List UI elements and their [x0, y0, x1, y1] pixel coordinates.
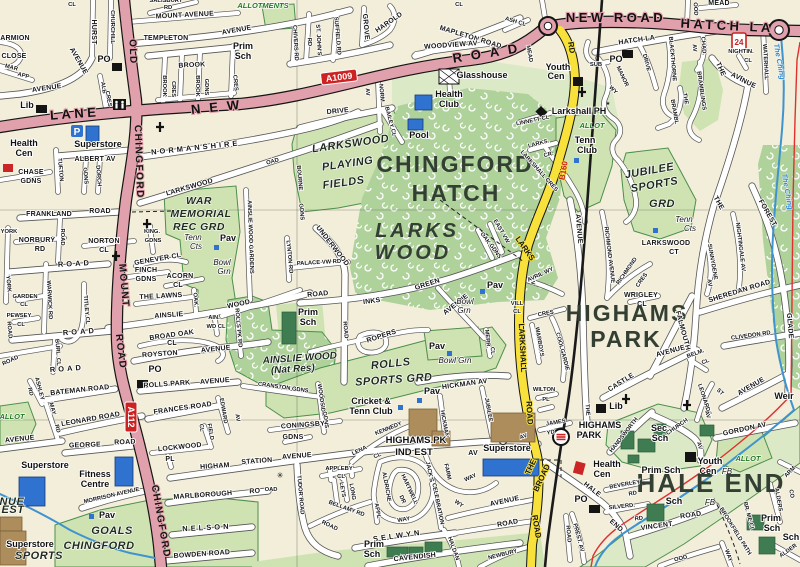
- map-label: MARMION: [0, 35, 30, 42]
- map-label: NORTON: [88, 238, 119, 245]
- map-label: CL: [173, 282, 183, 289]
- map-label: CL: [337, 474, 345, 480]
- pavilion-building: [214, 245, 219, 250]
- map-label: HIGHAMS: [579, 420, 622, 430]
- map-label: HURST: [90, 19, 97, 45]
- map-label: ALLOT: [735, 454, 762, 463]
- map-label: CL: [17, 322, 25, 328]
- map-label: SALISBURY: [149, 0, 182, 4]
- health-centre-building: [3, 164, 13, 172]
- map-label: Cen: [593, 469, 610, 479]
- school-building: [282, 312, 296, 344]
- map-label: FB: [705, 498, 716, 507]
- pavilion-building: [417, 398, 422, 403]
- road: [540, 407, 552, 410]
- map-label: ACORN: [167, 273, 194, 280]
- map-label: GEORGE: [69, 441, 101, 449]
- map-label: ROAD: [114, 439, 136, 447]
- map-label: PARK: [590, 326, 661, 352]
- map-label: OLD: [127, 39, 139, 65]
- map-label: HATCH: [412, 180, 501, 206]
- map-label: GDNS: [282, 434, 303, 441]
- roundabout-icon: [544, 22, 552, 30]
- toilets-icon: [115, 104, 117, 109]
- map-label: CHINGFORD: [376, 151, 533, 177]
- map-label: SUB: [590, 62, 602, 68]
- map-label: Superstore: [21, 460, 69, 470]
- map-label: FINCH: [135, 267, 157, 274]
- map-label: BROOK: [178, 61, 205, 69]
- roundabout-icon: [775, 26, 783, 34]
- school-building: [759, 537, 775, 554]
- pavilion-building: [89, 514, 94, 519]
- parking-icon: P: [74, 127, 81, 138]
- map-label: Fitness: [79, 469, 111, 479]
- map-label: Grn: [217, 267, 231, 276]
- map-label: THE: [584, 404, 591, 416]
- speed-badge-icon: 24: [735, 38, 744, 47]
- toilets-icon: [121, 101, 124, 104]
- street-map[interactable]: PA1009A11224✳★ SALISBURYRDMOUNT AVENUETE…: [0, 0, 800, 567]
- map-label: NIGHTIN.: [728, 49, 754, 55]
- map-label: Cen: [15, 148, 32, 158]
- map-label: RD: [35, 246, 46, 253]
- road: [542, 0, 545, 18]
- retail-building: [415, 95, 432, 110]
- map-label: WD CL: [207, 324, 226, 330]
- map-label: GDNS: [135, 276, 156, 283]
- map-label: Larkshall PH: [552, 106, 607, 116]
- map-label: PO: [148, 364, 161, 374]
- map-label: BROOK: [161, 75, 167, 97]
- map-label: PL: [165, 456, 175, 463]
- map-label: Bowl: [456, 297, 474, 306]
- map-label: Prim: [298, 307, 318, 317]
- map-label: Health: [593, 459, 621, 469]
- map-label: BROOK: [194, 75, 200, 97]
- map-label: APPLEBY: [325, 466, 353, 472]
- map-label: HIGHAMS.PK: [386, 435, 447, 446]
- pavilion-building: [398, 405, 403, 410]
- map-label: Glasshouse: [456, 70, 507, 80]
- map-label: Tenn: [184, 233, 202, 242]
- map-label: LARKS: [375, 220, 459, 242]
- map-label: CRES: [170, 81, 176, 97]
- map-label: Grn: [457, 306, 471, 315]
- map-label: CHINGFORD: [63, 540, 134, 552]
- map-label: Superstore: [6, 539, 54, 549]
- public-building: [573, 77, 583, 86]
- map-label: ROAD: [89, 208, 110, 215]
- map-label: AV: [364, 88, 371, 96]
- map-label: ROAD: [524, 401, 534, 425]
- public-building: [685, 452, 696, 462]
- map-label: FRANKLAND: [26, 211, 72, 218]
- map-label: Prim Sch: [641, 465, 680, 475]
- map-label: PARK: [577, 430, 602, 440]
- map-label: CL: [489, 347, 496, 356]
- map-label: RD: [634, 516, 643, 523]
- map-label: ALLOTMENTS: [236, 1, 288, 10]
- map-label: KING.: [144, 229, 160, 235]
- public-building: [596, 404, 606, 413]
- map-label: Pav: [99, 510, 115, 520]
- map-label: MEMORIAL: [170, 208, 231, 220]
- road: [180, 53, 182, 100]
- map-label: WAR: [186, 195, 212, 207]
- map-label: CL: [68, 2, 76, 8]
- map-label: GDNS: [203, 79, 209, 96]
- map-label: Pav: [424, 386, 440, 396]
- map-label: HIGHAMS: [566, 300, 689, 326]
- map-label: Superstore: [483, 443, 531, 453]
- map-label: GARDEN: [12, 294, 37, 300]
- map-canvas[interactable]: PA1009A11224✳★ SALISBURYRDMOUNT AVENUETE…: [0, 0, 800, 567]
- map-label: Sch: [666, 496, 683, 506]
- map-label: Centre: [81, 479, 110, 489]
- map-label: CL: [167, 340, 177, 347]
- map-label: Prim: [233, 41, 253, 51]
- public-building: [589, 505, 600, 513]
- map-label: LARKSWOOD: [642, 240, 690, 247]
- map-label: CL: [20, 302, 28, 308]
- map-label: Youth: [698, 456, 723, 466]
- map-label: CT: [669, 249, 679, 256]
- map-label: ROAD: [59, 228, 65, 245]
- industrial-building: [0, 517, 22, 531]
- map-label: D EST: [0, 504, 25, 516]
- map-label: Sch: [300, 317, 317, 327]
- map-label: Health: [435, 89, 463, 99]
- star-icon: ★: [606, 101, 611, 107]
- map-label: WILTON: [533, 387, 555, 393]
- map-label: AV: [468, 450, 478, 457]
- map-label: Cts: [190, 242, 202, 251]
- map-label: PL: [542, 397, 550, 403]
- map-label: IND EST: [395, 447, 433, 458]
- map-label: Bowl Grn: [439, 356, 472, 365]
- map-label: ALLOT: [579, 121, 606, 130]
- map-label: Tenn: [675, 215, 693, 224]
- map-label: PO: [574, 494, 587, 504]
- route-badge: A112: [125, 402, 137, 432]
- map-label: REC GRD: [173, 221, 225, 233]
- map-label: Pav: [487, 280, 503, 290]
- map-label: Cts: [684, 224, 696, 233]
- map-label: WOOD: [375, 242, 451, 264]
- map-label: Sch: [652, 433, 669, 443]
- map-label: Pool: [409, 130, 429, 140]
- map-label: Prim: [761, 513, 781, 523]
- retail-building: [408, 119, 423, 130]
- public-building: [112, 63, 122, 71]
- map-label: CL: [99, 247, 109, 254]
- pavilion-building: [480, 289, 485, 294]
- map-label: Pav: [220, 233, 236, 243]
- map-label: CL: [455, 2, 463, 8]
- map-label: Tenn: [575, 135, 596, 145]
- toilets-icon: [115, 101, 118, 104]
- map-label: Tenn Club: [349, 406, 393, 416]
- school-building: [647, 504, 664, 521]
- map-label: YORK: [1, 229, 19, 235]
- rail-station-icon: [557, 436, 566, 438]
- map-label: Prim: [364, 539, 384, 549]
- rail-station-icon: [557, 439, 566, 441]
- map-label: CL: [513, 309, 521, 315]
- map-label: GRD: [649, 198, 675, 210]
- map-label: RO: [249, 488, 261, 496]
- school-building: [700, 425, 714, 436]
- rail-station-icon: [557, 434, 566, 436]
- map-label: CHURCHILL: [109, 10, 115, 44]
- map-label: AV: [691, 44, 698, 52]
- map-label: CLOSE: [1, 53, 26, 60]
- map-label: Lib: [609, 401, 623, 411]
- public-building: [36, 105, 47, 113]
- map-label: Sch: [364, 549, 381, 559]
- map-label: TEMPLETON: [144, 35, 189, 42]
- map-label: MEAD: [708, 0, 729, 7]
- map-label: Weir: [774, 391, 794, 401]
- map-label: CL: [744, 58, 752, 64]
- map-label: PO: [97, 54, 110, 64]
- school-building: [425, 542, 442, 552]
- pavilion-building: [653, 228, 658, 233]
- map-label: OOD: [692, 2, 699, 16]
- map-label: RD: [306, 38, 312, 47]
- map-label: Bowl: [213, 258, 231, 267]
- mill-icon: ✳: [277, 471, 284, 480]
- map-label: ALLOT: [0, 412, 26, 421]
- map-label: WRIGLEY: [624, 292, 658, 299]
- toilets-icon: [121, 104, 123, 109]
- map-label: Sch: [235, 51, 252, 61]
- map-label: ALBERT AV: [74, 156, 115, 163]
- map-label: OAD: [265, 487, 278, 493]
- map-label: Cen: [547, 71, 564, 81]
- map-label: AIN.: [208, 315, 220, 321]
- public-building: [622, 50, 633, 58]
- map-label: ROAD: [58, 258, 93, 269]
- map-label: RD: [164, 5, 172, 11]
- map-label: VILL: [511, 301, 524, 307]
- pavilion-building: [574, 158, 579, 163]
- map-label: Health: [10, 138, 38, 148]
- map-label: Cricket &: [351, 396, 391, 406]
- map-label: GDNS: [145, 238, 162, 244]
- map-label: GDNS: [20, 178, 41, 185]
- route-badge: A112: [126, 406, 136, 427]
- map-label: GOALS: [91, 525, 133, 537]
- map-label: Pav: [429, 341, 445, 351]
- map-label: Superstore: [74, 139, 122, 149]
- map-label: CHASE: [18, 169, 44, 176]
- map-label: Club: [439, 99, 459, 109]
- map-label: Sch: [764, 523, 781, 533]
- map-label: Club: [577, 145, 597, 155]
- retail-building: [115, 457, 133, 486]
- map-label: NORBURY: [19, 237, 56, 244]
- map-label: Lib: [20, 100, 34, 110]
- school-building: [628, 455, 639, 463]
- map-label: PO: [609, 54, 622, 64]
- toilets-icon: [113, 99, 126, 110]
- map-label: NEW ROAD: [566, 10, 666, 25]
- map-label: Sch: [783, 532, 800, 542]
- map-label: PEWSEY: [7, 313, 32, 319]
- map-label: SPORTS: [15, 550, 63, 562]
